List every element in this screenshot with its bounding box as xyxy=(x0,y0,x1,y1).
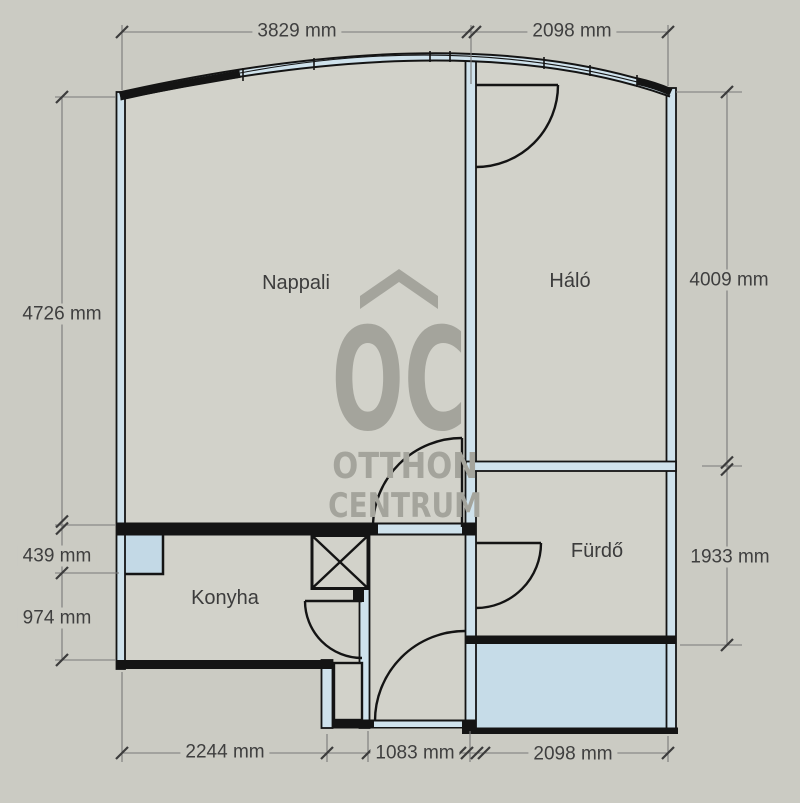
center-wall xyxy=(466,55,477,728)
watermark-logo: OC OTTHON CENTRUM xyxy=(328,269,482,526)
entry-door-opening xyxy=(374,722,462,728)
dim-right-bedroom: 4009 mm xyxy=(684,270,773,291)
room-label-living: Nappali xyxy=(262,273,330,293)
balcony-bottom-wall xyxy=(462,728,678,735)
room-label-bathroom: Fürdő xyxy=(571,541,623,561)
bedroom-bathroom-divider xyxy=(466,462,676,472)
dim-left-kitchen: 974 mm xyxy=(18,608,97,629)
dim-bottom-left: 2244 mm xyxy=(180,742,269,763)
dim-left-living: 4726 mm xyxy=(17,304,106,325)
logo-name-line2: CENTRUM xyxy=(328,486,482,525)
dim-bottom-hall: 1083 mm xyxy=(370,743,459,764)
room-label-bedroom: Háló xyxy=(549,271,590,291)
living-door-opening xyxy=(378,525,462,534)
kitchen-bottom-wall xyxy=(116,660,333,669)
balcony xyxy=(474,643,668,729)
floor-plan-canvas: OC OTTHON CENTRUM xyxy=(0,0,800,803)
logo-monogram: OC xyxy=(332,297,467,463)
dim-bottom-right: 2098 mm xyxy=(528,744,617,765)
dim-left-niche: 439 mm xyxy=(18,546,97,567)
dim-top-left: 3829 mm xyxy=(252,21,341,42)
bathroom-bottom-wall xyxy=(466,636,676,645)
closet xyxy=(334,663,362,720)
left-wall xyxy=(117,92,126,669)
shaft-box xyxy=(312,536,368,589)
logo-name-line1: OTTHON xyxy=(332,445,478,487)
dim-top-right: 2098 mm xyxy=(527,21,616,42)
room-label-kitchen: Konyha xyxy=(191,588,259,608)
protrusion-left-wall xyxy=(322,660,333,728)
dim-right-bath: 1933 mm xyxy=(685,547,774,568)
floor-plan: OC OTTHON CENTRUM Nappali Háló Fürdő Kon… xyxy=(0,0,800,803)
